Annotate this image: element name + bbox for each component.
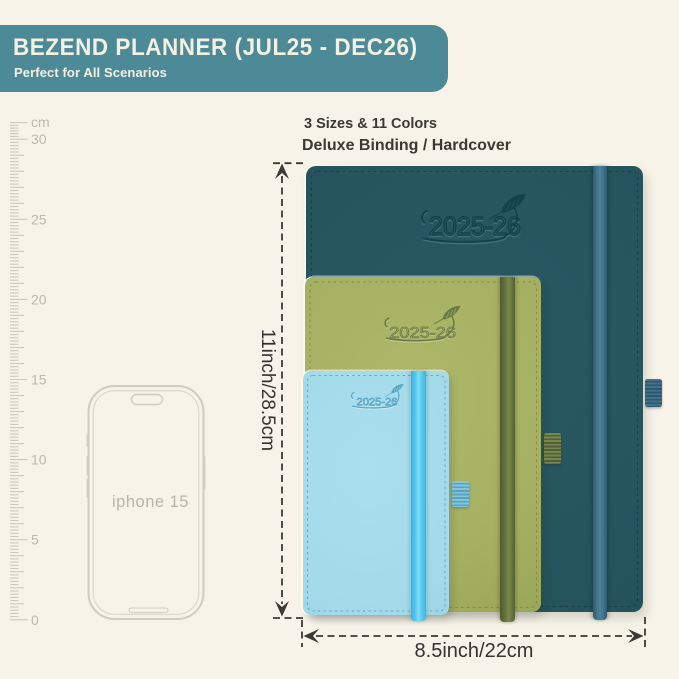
svg-text:0: 0 — [31, 612, 39, 628]
svg-text:15: 15 — [31, 372, 47, 388]
svg-text:2025-26: 2025-26 — [429, 211, 521, 241]
svg-text:iphone 15: iphone 15 — [112, 493, 189, 511]
svg-text:2025-26: 2025-26 — [357, 397, 398, 409]
svg-text:10: 10 — [31, 452, 47, 468]
svg-text:2025-26: 2025-26 — [389, 325, 456, 342]
svg-text:30: 30 — [31, 131, 47, 147]
svg-text:25: 25 — [31, 211, 47, 227]
svg-text:5: 5 — [31, 532, 39, 548]
svg-text:20: 20 — [31, 291, 47, 307]
svg-text:cm: cm — [31, 114, 50, 130]
